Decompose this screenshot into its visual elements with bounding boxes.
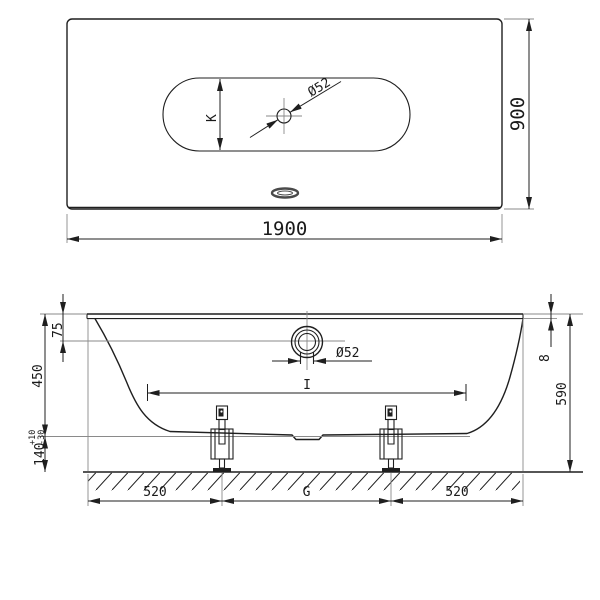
rim-to-overflow-label: 75 <box>51 322 66 338</box>
dim-interior-depth: 450 <box>31 314 46 437</box>
dim-overall-width: 1900 <box>67 214 502 243</box>
dim-overall-depth: 900 <box>504 19 534 209</box>
foot-inset-right-label: 520 <box>445 485 468 500</box>
logo-plate <box>272 189 298 198</box>
overflow-diameter-label: Ø52 <box>336 346 359 361</box>
dim-interior-width: K <box>205 79 220 150</box>
floor-clearance-tol-minus: -30 <box>37 430 47 445</box>
dim-overall-height: 590 <box>555 314 570 472</box>
foot-left <box>211 406 233 472</box>
tub-outline-plan <box>67 19 502 209</box>
interior-depth-label: 450 <box>31 364 46 387</box>
interior-length-label: I <box>303 378 311 393</box>
interior-width-label: K <box>205 114 220 122</box>
plan-view: K Ø52 1900 <box>67 19 534 243</box>
technical-drawing: K Ø52 1900 <box>0 0 600 600</box>
foot-spacing-label: G <box>303 485 311 500</box>
dim-overflow-diameter: Ø52 <box>272 346 372 361</box>
drain-diameter-label: Ø52 <box>306 75 334 100</box>
dim-rim-height: 8 <box>538 294 553 362</box>
dim-interior-length: I <box>148 378 467 401</box>
dim-rim-to-overflow: 75 <box>51 294 66 362</box>
drain-plan: Ø52 <box>250 75 341 137</box>
basin-outline-plan <box>163 78 410 151</box>
bathtub-drawing-canvas: K Ø52 1900 <box>0 0 600 600</box>
tub-rim-side <box>87 314 523 319</box>
overall-width-label: 1900 <box>262 218 308 240</box>
overall-depth-label: 900 <box>507 97 529 131</box>
foot-inset-left-label: 520 <box>143 485 166 500</box>
rim-height-label: 8 <box>538 354 553 362</box>
floor-clearance-label: 140 <box>33 443 48 466</box>
dim-floor-clearance: 140 +10 -30 <box>28 430 48 472</box>
side-view: Ø52 I <box>28 294 583 506</box>
foot-right <box>380 406 402 472</box>
overall-height-label: 590 <box>555 382 570 405</box>
